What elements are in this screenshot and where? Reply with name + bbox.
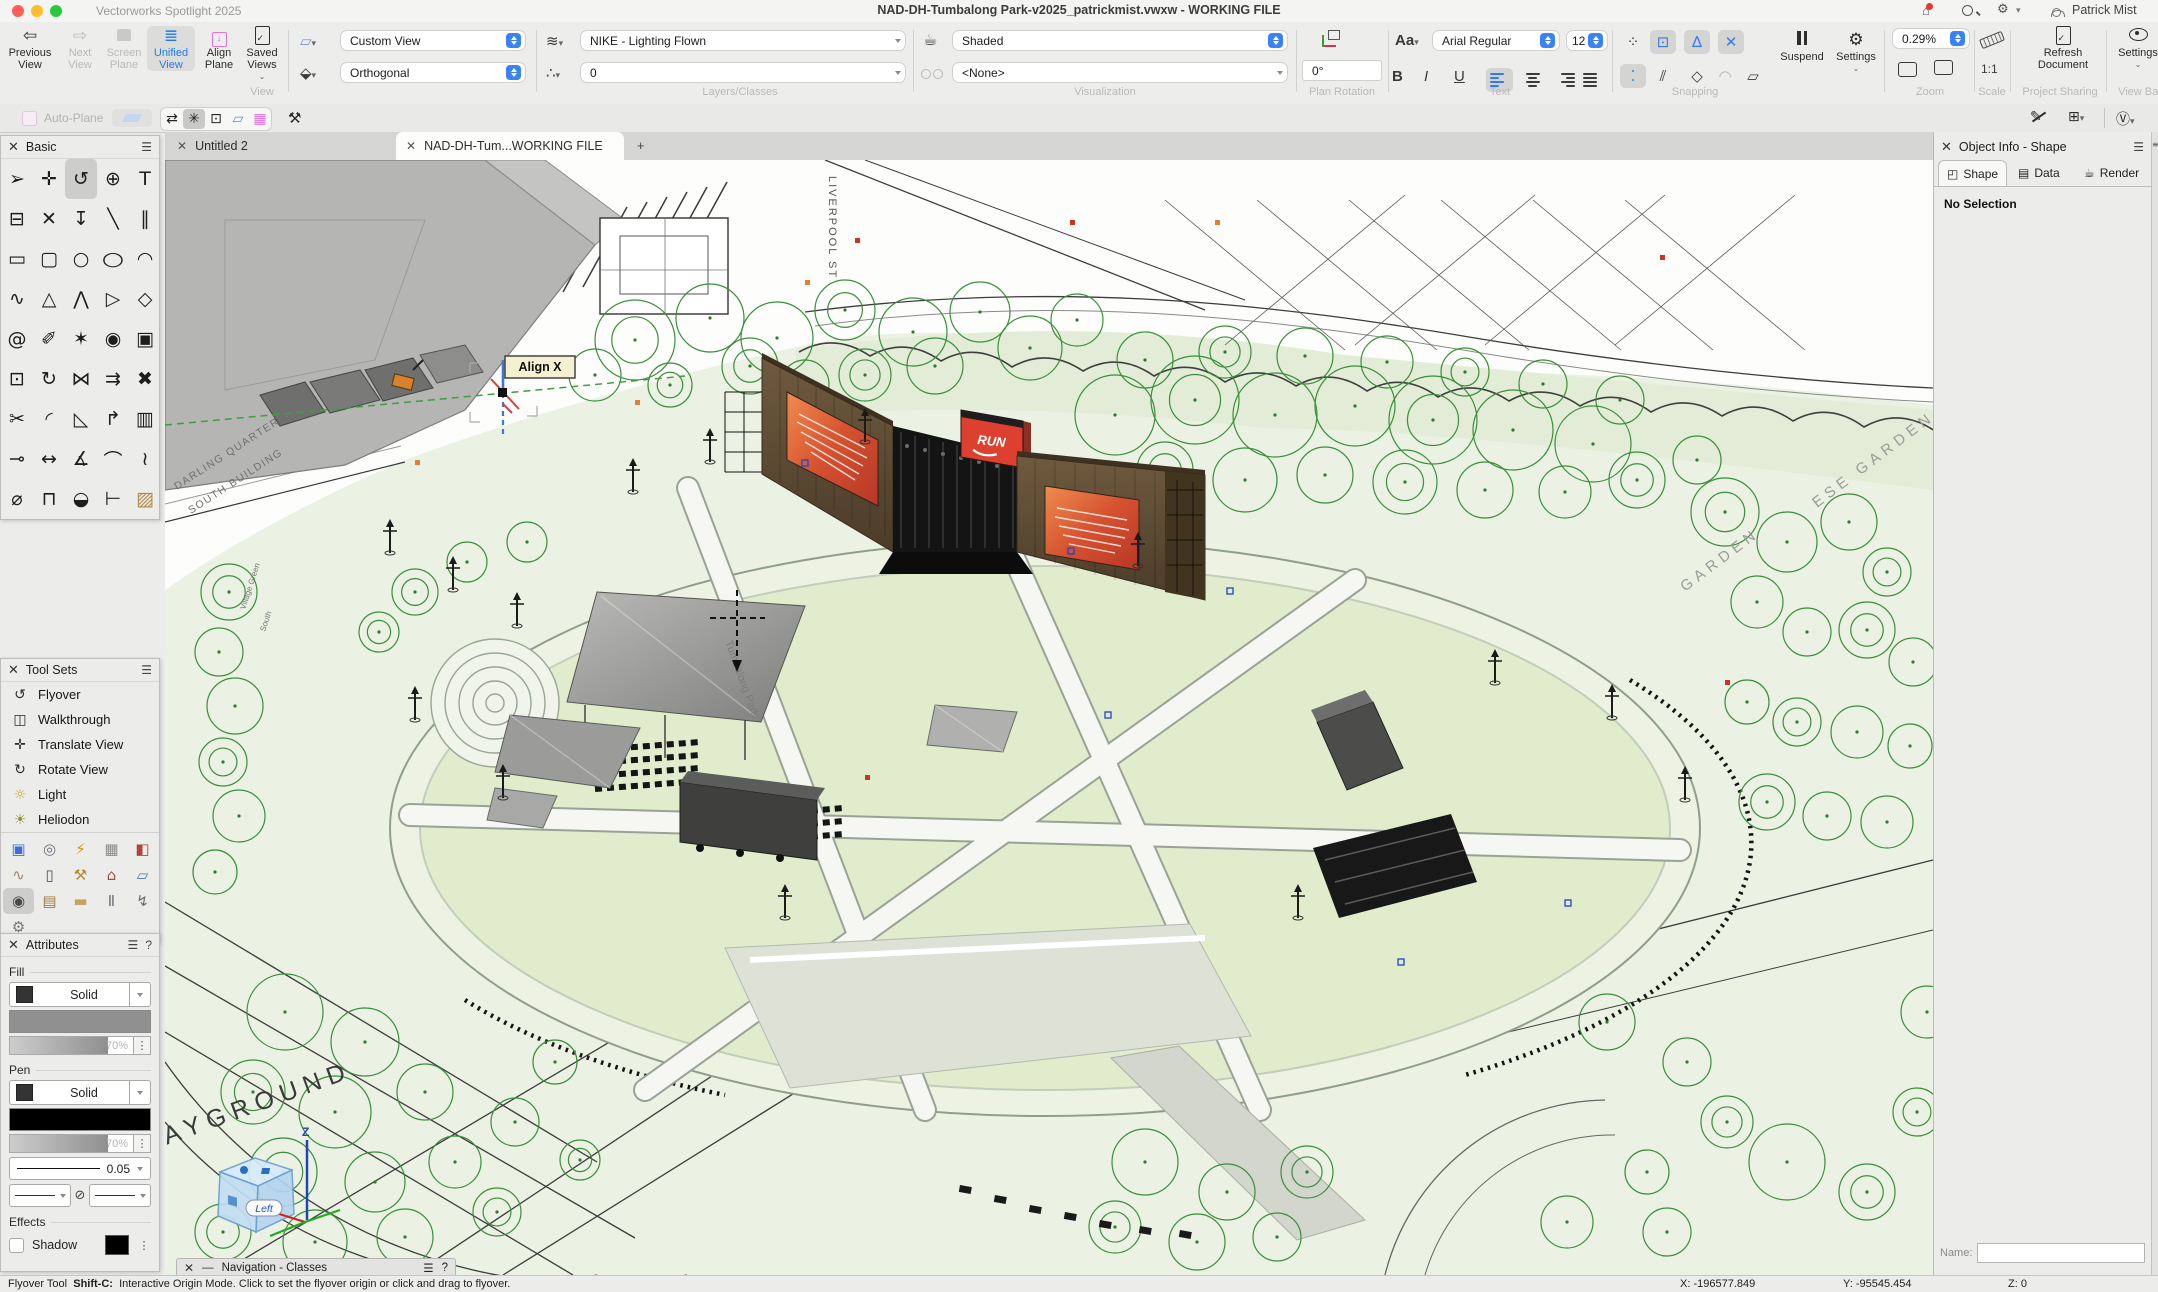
tool-diameter-dimension[interactable]: ⌀ (1, 479, 33, 519)
tab-data[interactable]: ▤Data (2010, 160, 2068, 185)
snap-smart-point-icon[interactable]: ⁚ (1620, 64, 1646, 88)
pen-swatch (16, 1084, 33, 1101)
align-plane-button[interactable]: ↓Align Plane (195, 26, 243, 71)
chevron-badge-icon (1268, 33, 1283, 48)
tool-sets-palette: ✕ Tool Sets ☰ ↺Flyover◫Walkthrough✛Trans… (0, 658, 160, 943)
attributes-header[interactable]: ✕ Attributes ☰ ? (1, 934, 159, 957)
view-bar: ⇦Previous View ⇨Next View Screen Plane ≣… (0, 22, 2158, 105)
palette-title: Navigation - Classes (222, 1262, 416, 1274)
light-icon: ☼ (11, 787, 29, 803)
tool-trim[interactable]: ✂ (1, 399, 33, 439)
cube-face-label: Left (255, 1203, 274, 1215)
object-info-header[interactable]: ✕ Object Info - Shape ☰ (1934, 136, 2151, 158)
screen-plane-button[interactable]: Screen Plane (100, 26, 148, 71)
pen-color-bar[interactable] (9, 1108, 151, 1131)
toolset-tool-cable[interactable]: ∿ (3, 862, 34, 888)
tool-flyover[interactable]: ↺ (65, 159, 97, 199)
attributes-palette: ✕ Attributes ☰ ? Fill Solid 70%⋮ Pen Sol… (0, 933, 160, 1272)
object-info-panel: ✕ Object Info - Shape ☰ ◰Shape ▤Data ☕Re… (1933, 132, 2151, 1275)
close-icon[interactable]: ✕ (1941, 139, 1952, 155)
close-tab-icon: ✕ (177, 139, 187, 153)
menu-icon[interactable]: ☰ (423, 1261, 433, 1275)
translate-view-icon: ✛ (11, 737, 29, 753)
menu-icon[interactable]: ☰ (141, 140, 152, 154)
toolset-walkthrough[interactable]: ◫Walkthrough (1, 707, 159, 732)
status-bar: Flyover Tool Shift-C: Interactive Origin… (0, 1275, 2158, 1292)
tab-render[interactable]: ☕Render (2076, 160, 2147, 185)
scale-ruler-icon (1980, 32, 2004, 49)
help-icon[interactable]: ? (442, 1262, 448, 1274)
class-dropdown[interactable]: 0 (580, 62, 906, 83)
gear-icon[interactable]: ⚙ (1997, 2, 2009, 17)
name-row: Name: (1934, 1243, 2151, 1263)
render-icon: ☕ (2084, 166, 2095, 180)
font-size-dropdown[interactable]: 12 (1566, 30, 1608, 51)
tool-preferences-icon[interactable]: ⚒ (288, 109, 301, 127)
chevron-badge-icon (1540, 33, 1555, 48)
palette-title: Basic (26, 140, 134, 154)
macos-menu-bar: Vectorworks Spotlight 2025 NAD-DH-Tumbal… (0, 0, 2158, 23)
toolset-rotate-view[interactable]: ↻Rotate View (1, 757, 159, 782)
data-icon: ▤ (2018, 166, 2029, 180)
close-window-button[interactable] (12, 5, 24, 17)
font-dropdown[interactable]: Arial Regular (1432, 30, 1560, 51)
drawing-canvas[interactable]: RUN PLAYGROUND GARDEN ESE GARDEN DARLING… (165, 160, 1933, 1275)
window-title: NAD-DH-Tumbalong Park-v2025_patrickmist.… (0, 3, 2158, 17)
toolset-tool-projection-screen[interactable]: ▱ (127, 862, 158, 888)
tool-clip[interactable]: ▣ (129, 319, 161, 359)
tool-set-list: ↺Flyover◫Walkthrough✛Translate View↻Rota… (1, 682, 159, 832)
saved-views-icon (238, 26, 286, 46)
tool-connect[interactable]: ⊸ (1, 439, 33, 479)
snap-intersection-icon[interactable]: ✕ (1718, 30, 1744, 54)
screen-plane-icon (100, 26, 148, 46)
home-icon[interactable]: ⌂ (1922, 3, 1930, 18)
previous-view-icon: ⇦ (6, 26, 54, 46)
collapse-icon[interactable]: — (202, 1262, 214, 1274)
text-group-label: Text (1450, 86, 1550, 98)
palette-title: Attributes (26, 938, 121, 952)
pen-style-dropdown[interactable]: Solid (9, 1080, 151, 1105)
chevron-badge-icon (506, 65, 521, 80)
tool-double-line[interactable]: ∥ (129, 199, 161, 239)
fit-page-icon[interactable] (1932, 62, 1951, 81)
basic-tool-grid: ➢✛↺⊕T⊟✕↧╲∥▭▢○○◠∿△⋀▷◇@✐✶◉▣⊡↻⋈⇉✖✂◜◺↱▥⊸↔∡⌒≀… (1, 159, 159, 519)
street-name-label: LIVERPOOL ST (826, 176, 838, 279)
tool-tape-measure[interactable]: ⊓ (33, 479, 65, 519)
tool-rotate[interactable]: ↻ (33, 359, 65, 399)
toolset-tool-video-screen[interactable]: ▣ (3, 836, 34, 862)
chevron-down-icon[interactable]: ▾ (2016, 5, 2021, 16)
toolset-tool-stage[interactable]: ◧ (127, 836, 158, 862)
rotate-view-icon: ↻ (11, 762, 29, 778)
view-bar-group-label: View Bar (2110, 86, 2158, 98)
object-info-tabs: ◰Shape ▤Data ☕Render (1934, 160, 2151, 187)
plan-rotation-icon (1322, 30, 1340, 47)
tool-hatch[interactable]: ▨ (129, 479, 161, 519)
tool-line[interactable]: ╲ (97, 199, 129, 239)
working-plane-mode-icon[interactable]: ⊡ (205, 109, 227, 129)
tool-set-grid: ▣◎⚡▦◧∿▯⚒⌂▱◉▤▬Ⅱ↯⚙ (1, 832, 159, 942)
flyover-mode-group: ⇄ ✳ ⊡ ▱ ▦ (160, 107, 272, 131)
close-icon[interactable]: ✕ (8, 662, 19, 678)
tool-mirror[interactable]: ⋈ (65, 359, 97, 399)
render-mode-dropdown[interactable]: Shaded (952, 30, 1288, 51)
line-end-dropdown[interactable] (89, 1184, 151, 1207)
pause-icon (1797, 31, 1807, 45)
close-icon[interactable]: ✕ (184, 1261, 194, 1275)
line-style-row: ⊘ (9, 1184, 151, 1207)
tool-delete[interactable]: ✖ (129, 359, 161, 399)
tool-pan[interactable]: ✛ (33, 159, 65, 199)
eye-icon (2112, 26, 2158, 46)
status-message: Flyover Tool Shift-C: Interactive Origin… (8, 1278, 510, 1290)
add-view-icon[interactable]: ⊞▾ (2068, 109, 2084, 125)
tool-linear-dimension[interactable]: ↔ (33, 439, 65, 479)
align-x-tooltip: Align X (505, 356, 575, 378)
menu-icon[interactable]: ☰ (141, 663, 152, 677)
close-tab-icon: ✕ (406, 139, 416, 153)
tool-rectangle[interactable]: ▭ (1, 239, 33, 279)
align-right-button[interactable] (1548, 68, 1575, 92)
plan-rotation-group-label: Plan Rotation (1292, 86, 1392, 98)
snapping-suspend-button[interactable]: Suspend (1776, 30, 1828, 63)
name-input[interactable] (1977, 1243, 2145, 1263)
tool-magic-wand[interactable]: ✶ (65, 319, 97, 359)
line-style-dropdown[interactable] (9, 1184, 71, 1207)
projection-dropdown[interactable]: Orthogonal (340, 62, 526, 83)
tool-snap-point[interactable]: ✕ (33, 199, 65, 239)
saved-views-button[interactable]: Saved Views⌄ (238, 26, 286, 83)
auto-plane-label: Auto-Plane (44, 111, 103, 125)
next-view-icon: ⇨ (56, 26, 104, 46)
cursor-y-coordinate: Y: -95545.454 (1843, 1278, 1912, 1290)
grid-mode-icon[interactable]: ▦ (249, 109, 271, 129)
toolset-tool-distribution-panel[interactable]: ▯ (34, 862, 65, 888)
tool-reshape[interactable]: ⊡ (1, 359, 33, 399)
layers-group-label: Layers/Classes (640, 86, 840, 98)
cursor-z-coordinate: Z: 0 (2008, 1278, 2027, 1290)
tool-mode-bar: Auto-Plane ⇄ ✳ ⊡ ▱ ▦ ⚒ ✎ ⊞▾ Ⓥ▾ (0, 104, 2158, 133)
no-selection-text: No Selection (1934, 187, 2151, 221)
snap-grid-icon[interactable]: ⁘ (1620, 30, 1646, 54)
run-sign-text: RUN (977, 432, 1007, 450)
toolset-tool-house[interactable]: ⌂ (96, 862, 127, 888)
svg-text:Align X: Align X (518, 360, 562, 374)
auto-plane-checkbox[interactable] (22, 111, 37, 126)
zoom-group-label: Zoom (1890, 86, 1970, 98)
tool-sets-header[interactable]: ✕ Tool Sets ☰ (1, 659, 159, 682)
classes-icon[interactable]: ∴▾ (546, 64, 560, 82)
project-sharing-group-label: Project Sharing (2014, 86, 2106, 98)
close-icon[interactable]: ✕ (8, 139, 19, 155)
view-bar-settings-button[interactable]: Settings⌄ (2112, 26, 2158, 71)
data-visualization-icon[interactable] (921, 66, 943, 83)
tool-offset[interactable]: ⇉ (97, 359, 129, 399)
unified-view-icon: ≣ (147, 26, 195, 46)
zoom-window-button[interactable] (50, 5, 62, 17)
no-annotation-icon[interactable]: ✎ (2030, 109, 2042, 125)
tab-shape[interactable]: ◰Shape (1938, 160, 2007, 186)
street-grid (1165, 195, 1805, 350)
snap-object-icon[interactable]: ⊡ (1650, 30, 1676, 54)
toolset-tool-bolt[interactable]: ↯ (127, 888, 158, 914)
menu-icon[interactable]: ☰ (2133, 140, 2144, 154)
next-view-button[interactable]: ⇨Next View (56, 26, 104, 71)
tool-ordinate-dimension[interactable]: ≀ (129, 439, 161, 479)
user-name[interactable]: Patrick Mist (2072, 3, 2137, 17)
shape-icon: ◰ (1947, 167, 1958, 181)
render-teapot-icon[interactable]: ☕ (923, 30, 937, 49)
chevron-badge-icon (1588, 33, 1603, 48)
snap-angle-icon[interactable]: ∆ (1684, 30, 1710, 54)
building-courtyard (600, 218, 728, 314)
shadow-menu-icon[interactable]: ⋮ (137, 1239, 151, 1252)
snapping-settings-button[interactable]: ⚙Settings⌄ (1830, 30, 1882, 75)
collapsed-palette-strip[interactable]: ≡ (2151, 132, 2158, 1275)
help-icon[interactable]: ? (145, 938, 152, 952)
plan-rotation-input[interactable]: 0° (1302, 60, 1382, 81)
snap-distance-icon[interactable]: ◇ (1684, 64, 1710, 88)
toolset-tool-video-camera[interactable]: ◉ (3, 888, 34, 914)
tool-selection[interactable]: ➢ (1, 159, 33, 199)
opacity-menu-icon[interactable]: ⋮ (133, 1037, 150, 1054)
close-icon[interactable]: ✕ (8, 937, 19, 953)
version-badge-icon[interactable]: Ⓥ▾ (2116, 109, 2135, 129)
fit-objects-icon[interactable] (1898, 62, 1917, 81)
tool-callout[interactable]: ⊟ (1, 199, 33, 239)
view-preset-dropdown[interactable]: Custom View (340, 30, 526, 51)
toolset-tool-ruler[interactable]: ▬ (65, 888, 96, 914)
toolset-tool-hand-truck[interactable]: ⚒ (65, 862, 96, 888)
palette-title: Tool Sets (26, 663, 134, 677)
tab-working-file[interactable]: ✕NAD-DH-Tum...WORKING FILE (396, 132, 624, 160)
align-justify-button[interactable] (1579, 68, 1606, 92)
shadow-row: Shadow ⋮ (9, 1235, 151, 1255)
user-icon (2052, 5, 2065, 20)
shadow-checkbox[interactable] (9, 1238, 24, 1253)
z-axis-label: Z (302, 1125, 309, 1139)
tool-fillet[interactable]: ◜ (33, 399, 65, 439)
scale-value[interactable]: 1:1 (1981, 62, 1998, 76)
tool-text[interactable]: T (129, 159, 161, 199)
fill-opacity-slider[interactable]: 70%⋮ (9, 1036, 151, 1055)
tool-oval[interactable]: ○ (91, 239, 134, 279)
pen-section-label: Pen (9, 1063, 151, 1077)
search-icon[interactable] (1962, 4, 1978, 19)
interactive-origin-mode-icon[interactable]: ✳ (183, 109, 205, 129)
pen-opacity-slider[interactable]: 70%⋮ (9, 1134, 151, 1153)
tool-extend[interactable]: ↱ (97, 399, 129, 439)
tool-protractor[interactable]: ◒ (65, 479, 97, 519)
fill-section-label: Fill (9, 965, 151, 979)
bold-button[interactable]: B (1392, 68, 1403, 85)
align-plane-icon: ↓ (195, 26, 243, 46)
plane-mode-icon[interactable]: ▱ (227, 109, 249, 129)
fill-swatch (16, 986, 33, 1003)
snapping-group-label: Snapping (1650, 86, 1740, 98)
projection-icon[interactable]: ⬙▾ (300, 64, 316, 82)
view-group-label: View (232, 86, 292, 98)
basic-palette-header[interactable]: ✕ Basic ☰ (1, 136, 159, 159)
tool-freehand[interactable]: ∿ (1, 279, 33, 319)
toolset-tool-power[interactable]: ⚡ (65, 836, 96, 862)
refresh-document-icon (2028, 26, 2098, 46)
fill-style-dropdown[interactable]: Solid (9, 982, 151, 1007)
tool-angular-dimension[interactable]: ∡ (65, 439, 97, 479)
menu-icon[interactable]: ☰ (128, 938, 139, 952)
toolset-tool-steel-beam[interactable]: Ⅱ (96, 888, 127, 914)
toolset-tool-truss[interactable]: ▦ (96, 836, 127, 862)
scale-group-label: Scale (1962, 86, 2022, 98)
tool-regular-polygon[interactable]: ◇ (129, 279, 161, 319)
cursor-x-coordinate: X: -196577.849 (1680, 1278, 1755, 1290)
chevron-badge-icon (506, 33, 521, 48)
chevron-badge-icon (1950, 31, 1965, 46)
tool-eyedropper[interactable]: ✐ (33, 319, 65, 359)
app-name: Vectorworks Spotlight 2025 (96, 4, 241, 18)
visualization-group-label: Visualization (1020, 86, 1190, 98)
snap-tangent-icon[interactable]: ◠ (1712, 64, 1738, 88)
tool-section-line[interactable]: ⊢ (97, 479, 129, 519)
panel-title: Object Info - Shape (1959, 140, 2126, 154)
line-weight-dropdown[interactable]: 0.05 (9, 1157, 151, 1180)
tool-shell[interactable]: ▥ (129, 399, 161, 439)
effects-section-label: Effects (9, 1215, 151, 1229)
zoom-level-dropdown[interactable]: 0.29% (1892, 28, 1970, 49)
previous-view-button[interactable]: ⇦Previous View (6, 26, 54, 71)
tool-select-similar[interactable]: ◉ (97, 319, 129, 359)
opacity-menu-icon[interactable]: ⋮ (133, 1135, 150, 1152)
toolset-flyover[interactable]: ↺Flyover (1, 682, 159, 707)
unlink-icon[interactable]: ⊘ (75, 1188, 86, 1203)
tool-send-to-surface[interactable]: ↧ (65, 199, 97, 239)
tool-spiral[interactable]: @ (1, 319, 33, 359)
unified-view-button[interactable]: ≣Unified View (147, 26, 195, 71)
data-visualization-dropdown[interactable]: <None> (952, 62, 1288, 83)
toolset-translate-view[interactable]: ✛Translate View (1, 732, 159, 757)
toolset-tool-lens[interactable]: ◎ (34, 836, 65, 862)
shadow-label: Shadow (32, 1238, 97, 1252)
object-center-mode-icon[interactable]: ⇄ (161, 109, 183, 129)
basic-tool-palette: ✕ Basic ☰ ➢✛↺⊕T⊟✕↧╲∥▭▢○○◠∿△⋀▷◇@✐✶◉▣⊡↻⋈⇉✖… (0, 135, 160, 520)
minimize-window-button[interactable] (31, 5, 43, 17)
tool-rounded-rectangle[interactable]: ▢ (33, 239, 65, 279)
new-tab-button[interactable]: + (627, 132, 657, 160)
tab-untitled[interactable]: ✕Untitled 2 (167, 132, 258, 160)
text-style-icon[interactable]: Aa▾ (1395, 32, 1419, 49)
tool-polygon[interactable]: △ (33, 279, 65, 319)
shadow-color-swatch[interactable] (105, 1235, 129, 1255)
refresh-document-button[interactable]: Refresh Document (2028, 26, 2098, 71)
walkthrough-icon: ◫ (11, 712, 29, 728)
underline-button[interactable]: U (1454, 68, 1465, 85)
name-label: Name: (1940, 1247, 1972, 1259)
gear-icon: ⚙ (1830, 30, 1882, 50)
heliodon-icon: ☀ (11, 812, 29, 828)
fill-color-bar[interactable] (9, 1010, 151, 1033)
auto-plane-mode-button[interactable] (112, 109, 152, 127)
toolset-tool-crate[interactable]: ▤ (34, 888, 65, 914)
tool-zoom[interactable]: ⊕ (97, 159, 129, 199)
layer-dropdown[interactable]: NIKE - Lighting Flown (580, 30, 906, 51)
document-tab-strip: ✕Untitled 2 ✕NAD-DH-Tum...WORKING FILE + (165, 132, 1933, 160)
italic-button[interactable]: I (1424, 68, 1428, 85)
snap-working-plane-icon[interactable]: ▱ (1740, 64, 1766, 88)
snap-smart-edge-icon[interactable]: ⫽ (1650, 64, 1676, 88)
tool-chamfer[interactable]: ◺ (65, 399, 97, 439)
tool-radial-dimension[interactable]: ⌒ (97, 439, 129, 479)
view-preset-icon[interactable]: ▱▾ (300, 32, 316, 50)
tool-closed-polygon[interactable]: ▷ (97, 279, 129, 319)
toolset-light[interactable]: ☼Light (1, 782, 159, 807)
flyover-icon: ↺ (11, 687, 29, 703)
tool-polyline[interactable]: ⋀ (65, 279, 97, 319)
toolset-heliodon[interactable]: ☀Heliodon (1, 807, 159, 832)
layers-icon[interactable]: ≋▾ (546, 32, 563, 50)
vectorworks-window: { "window": { "app_name": "Vectorworks S… (0, 0, 2158, 1291)
